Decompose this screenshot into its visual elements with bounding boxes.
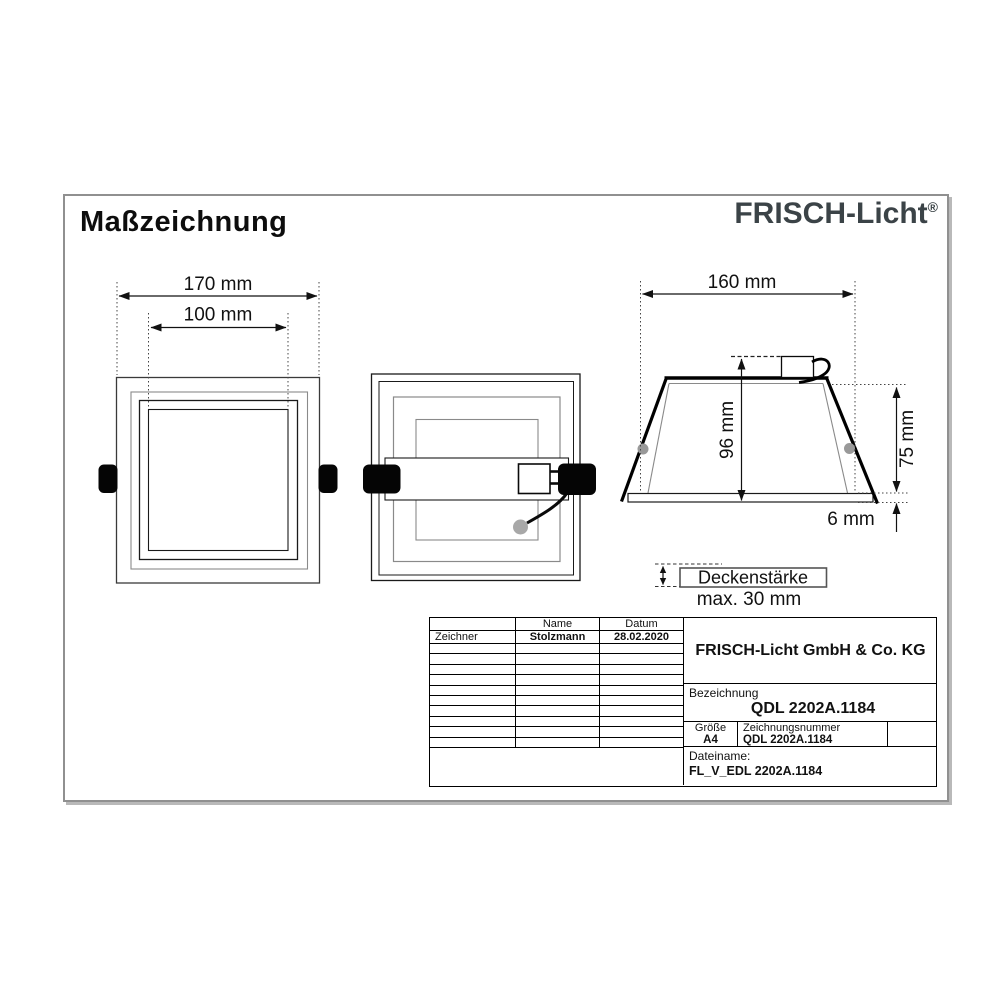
dim-label-170: 170 mm: [184, 274, 253, 295]
filename-value: FL_V_EDL 2202A.1184: [689, 764, 937, 778]
drawing-number-label: Zeichnungsnummer: [743, 722, 887, 734]
title-block-revision-table: Name Datum Zeichner Stolzmann 28.02.2020: [430, 618, 684, 748]
table-row-empty: [430, 706, 683, 716]
dim-label-75: 75 mm: [897, 410, 918, 468]
size-cell: Größe A4: [684, 722, 738, 746]
front-left-clip: [99, 465, 118, 494]
size-label: Größe: [684, 722, 737, 734]
table-header-row: Name Datum: [430, 618, 683, 631]
cell-role: Zeichner: [430, 631, 516, 643]
left-pivot: [638, 444, 649, 455]
table-row-empty: [430, 665, 683, 675]
dim-label-6: 6 mm: [827, 509, 875, 530]
right-pivot: [844, 443, 855, 454]
header-datum: Datum: [600, 618, 683, 630]
technical-drawing: 170 mm 100 mm: [0, 0, 1000, 1000]
table-row-empty: [430, 654, 683, 664]
front-view: 170 mm 100 mm: [99, 274, 338, 583]
terminal-box: [519, 464, 551, 494]
title-block: Name Datum Zeichner Stolzmann 28.02.2020…: [429, 617, 937, 787]
cell-datum: 28.02.2020: [600, 631, 683, 643]
drawing-number-value: QDL 2202A.1184: [743, 734, 887, 746]
table-row-empty: [430, 727, 683, 737]
table-row-empty: [430, 686, 683, 696]
table-row-empty: [430, 738, 683, 748]
cell-name: Stolzmann: [516, 631, 600, 643]
filename-label: Dateiname:: [689, 749, 937, 763]
back-right-clip: [558, 464, 596, 496]
drawing-number-cell: Zeichnungsnummer QDL 2202A.1184: [738, 722, 888, 746]
front-outer-frame: [117, 378, 320, 584]
table-row: Zeichner Stolzmann 28.02.2020: [430, 631, 683, 644]
header-empty-cell: [430, 618, 516, 630]
table-row-empty: [430, 717, 683, 727]
note-max-value: max. 30 mm: [697, 589, 802, 610]
front-right-clip: [319, 465, 338, 494]
dim-label-160: 160 mm: [708, 272, 777, 293]
right-spring-clip: [827, 379, 878, 504]
designation-label: Bezeichnung: [689, 686, 937, 700]
dim-label-100: 100 mm: [184, 305, 253, 326]
back-left-clip: [363, 465, 401, 494]
front-frame-2: [131, 392, 308, 569]
front-light-aperture: [149, 410, 289, 551]
filename-cell: Dateiname: FL_V_EDL 2202A.1184: [684, 747, 937, 785]
header-name: Name: [516, 618, 600, 630]
ceiling-flange: [628, 494, 873, 503]
title-block-notes-cell: [430, 748, 684, 785]
designation-value: QDL 2202A.1184: [689, 700, 937, 718]
top-terminal-box: [782, 357, 814, 378]
company-name: FRISCH-Licht GmbH & Co. KG: [684, 618, 937, 684]
size-and-number-row: Größe A4 Zeichnungsnummer QDL 2202A.1184: [684, 722, 937, 747]
title-block-right: FRISCH-Licht GmbH & Co. KG Bezeichnung Q…: [684, 618, 937, 785]
side-view: 160 mm 96 mm 75 mm 6 mm: [622, 272, 919, 532]
drawing-sheet: Maßzeichnung FRISCH-Licht® 170 mm: [0, 0, 1000, 1000]
front-frame-3: [140, 401, 298, 560]
table-row-empty: [430, 675, 683, 685]
note-box-label: Deckenstärke: [698, 568, 808, 588]
cable-gland: [513, 520, 528, 535]
table-row-empty: [430, 696, 683, 706]
table-row-empty: [430, 644, 683, 654]
dim-label-96: 96 mm: [717, 401, 738, 459]
left-spring-clip: [622, 379, 667, 502]
back-view: [363, 374, 596, 581]
size-value: A4: [684, 734, 737, 746]
ceiling-thickness-note: Deckenstärke max. 30 mm: [655, 564, 827, 610]
empty-cell: [888, 722, 937, 746]
designation-cell: Bezeichnung QDL 2202A.1184: [684, 684, 937, 722]
